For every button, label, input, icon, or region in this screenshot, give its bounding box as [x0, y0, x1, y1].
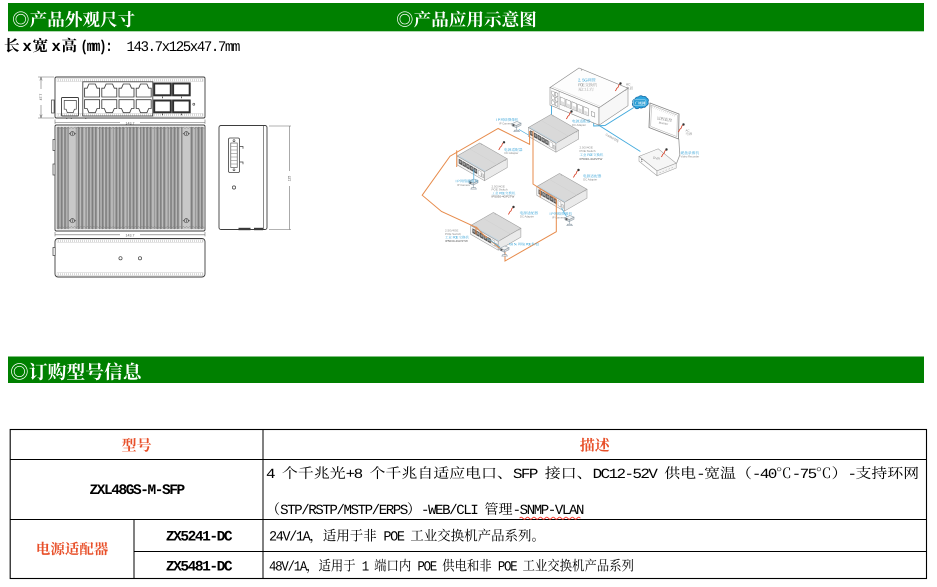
svg-text:AC: AC — [686, 129, 690, 133]
svg-text:Video Recorder: Video Recorder — [681, 155, 700, 159]
svg-text:IP Camera: IP Camera — [552, 216, 565, 220]
svg-text:IP Camera: IP Camera — [499, 122, 512, 126]
svg-text:IP5030-4GP2TW: IP5030-4GP2TW — [580, 157, 603, 161]
svg-text:DC Adapter: DC Adapter — [583, 178, 597, 182]
svg-text:IP5030-4GP2TW: IP5030-4GP2TW — [445, 239, 468, 243]
svg-text:47.7: 47.7 — [39, 94, 43, 101]
svg-text:125: 125 — [288, 176, 292, 182]
svg-text:AC: AC — [626, 83, 631, 87]
svg-text:DC Adapter: DC Adapter — [505, 151, 519, 155]
svg-text:IP5030-4GP2TW: IP5030-4GP2TW — [492, 195, 515, 199]
svg-text:POE Switch: POE Switch — [580, 149, 596, 153]
svg-text:IP Camera: IP Camera — [457, 183, 470, 187]
svg-text:143.7: 143.7 — [126, 234, 135, 238]
svg-text:POE Switch: POE Switch — [445, 232, 461, 236]
svg-text:DC Adapter: DC Adapter — [520, 215, 534, 219]
svg-text:POE Switch: POE Switch — [492, 188, 508, 192]
svg-text:DC Adapter: DC Adapter — [572, 123, 586, 127]
